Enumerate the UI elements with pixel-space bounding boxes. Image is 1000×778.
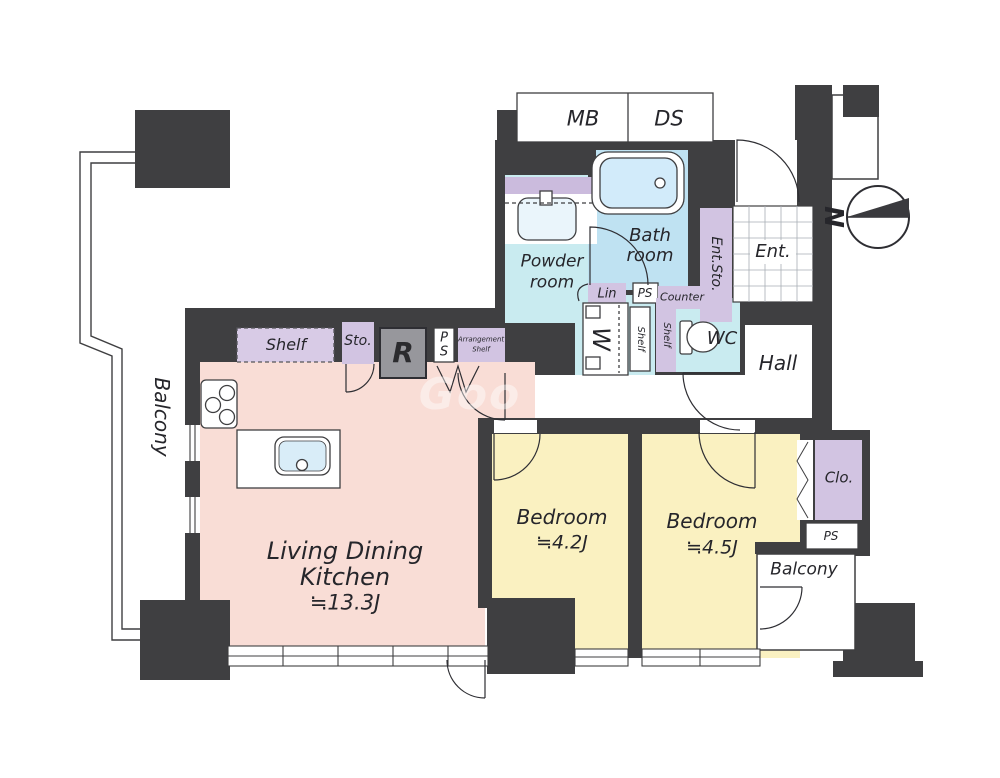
wc-label: WC <box>707 330 737 348</box>
shelf-label: Shelf <box>266 337 306 353</box>
storage-label: Sto. <box>344 334 371 348</box>
washer-label: W <box>589 327 613 351</box>
ldk-area-label: ≒13.3J <box>310 593 381 614</box>
compass-north-label: N <box>823 206 849 228</box>
shelf-vertical-2-label: Shelf <box>661 322 671 347</box>
meter-box-label: MB <box>567 109 600 130</box>
arrangement-shelf-label-1: Arrangement <box>458 337 504 344</box>
bedroom2-label: Bedroom <box>667 511 758 531</box>
bedroom1-area-label: ≒4.2J <box>536 534 588 553</box>
compass <box>847 186 909 248</box>
shelf-vertical-1-label: Shelf <box>635 326 645 351</box>
refrigerator-label: R <box>392 339 414 367</box>
balcony-left-outline <box>80 152 140 640</box>
bedroom1-door-gap <box>494 420 537 433</box>
pipe-space-top-label: PS <box>638 287 653 299</box>
bath-room-label-1: Bath <box>629 227 671 245</box>
pipe-space-kitchen-s: S <box>440 346 448 359</box>
powder-room-label-1: Powder <box>521 254 584 271</box>
arrangement-shelf-label-2: Shelf <box>472 347 490 354</box>
entry-alcove <box>735 140 797 206</box>
linen-label: Lin <box>597 288 616 301</box>
bath-room-label-2: room <box>627 247 674 265</box>
bedroom2-area-label: ≒4.5J <box>686 539 738 558</box>
ldk-label-1: Living Dining <box>267 539 423 563</box>
upper-corner-column <box>843 85 879 117</box>
closet-label: Clo. <box>825 471 854 486</box>
pipe-space-kitchen-p: P <box>440 332 448 345</box>
bedroom2-door-gap <box>700 420 755 433</box>
duct-space-label: DS <box>654 109 684 130</box>
balcony-right-label: Balcony <box>770 562 837 579</box>
powder-room-label-2: room <box>530 275 574 292</box>
hall-label: Hall <box>759 353 797 373</box>
ldk-label-2: Kitchen <box>300 565 390 589</box>
pipe-space-right-label: PS <box>824 530 839 542</box>
entrance-label: Ent. <box>755 243 791 261</box>
floor-plan: MB DS Bath room Powder room Ent.Sto. Ent… <box>0 0 1000 778</box>
entrance-storage-label: Ent.Sto. <box>709 236 723 291</box>
counter-label: Counter <box>660 292 704 303</box>
bedroom1-label: Bedroom <box>517 507 608 527</box>
balcony-left-label: Balcony <box>152 377 172 456</box>
watermark: Goo <box>419 373 522 417</box>
